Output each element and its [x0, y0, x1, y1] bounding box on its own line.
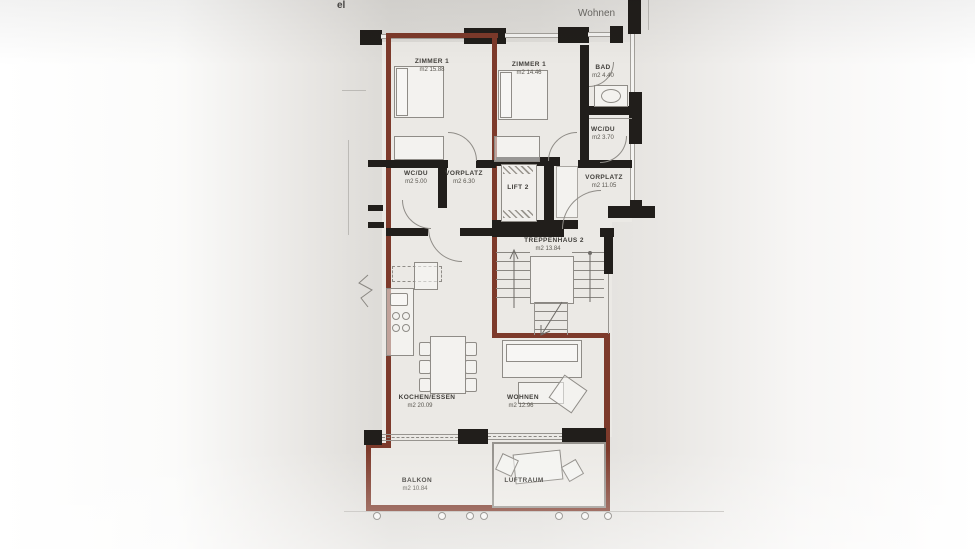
bed-pillow-icon [396, 68, 408, 116]
wall-segment [580, 45, 589, 163]
sliding-door-dash [382, 437, 458, 438]
apartment-outline-left [386, 33, 391, 445]
wall-stub [368, 160, 386, 167]
wall-segment [460, 228, 493, 236]
wall-segment [592, 428, 606, 442]
chair-icon [465, 360, 477, 374]
reference-line [342, 90, 366, 91]
room-label-wcdu-right: WC/DU [591, 126, 615, 133]
room-area-balkon: m2 10.84 [402, 486, 427, 492]
wall-segment [608, 206, 655, 218]
wall-segment [628, 0, 641, 34]
scanned-floor-plan-photo: el Wohnen [0, 0, 975, 549]
wall-segment [492, 228, 564, 237]
railing-post-icon [466, 512, 474, 520]
chair-icon [465, 342, 477, 356]
window [630, 34, 635, 92]
wall-segment [364, 430, 382, 445]
room-area-wcdu-right: m2 3.70 [592, 135, 614, 141]
lift-door-hatch [503, 210, 533, 218]
sliding-door-dash [488, 436, 562, 437]
railing-post-icon [604, 512, 612, 520]
room-area-zimmer1-right: m2 14.46 [516, 70, 541, 76]
wall-segment [562, 428, 592, 443]
chair-icon [419, 378, 431, 392]
ground-line [344, 511, 724, 512]
wall-segment [438, 162, 447, 208]
header-label-wohnen: Wohnen [578, 8, 615, 19]
page-text-fragment: el [337, 0, 345, 11]
dining-table-icon [430, 336, 466, 394]
room-area-treppenhaus-2: m2 13.84 [535, 246, 560, 252]
wall-segment [458, 429, 488, 444]
room-area-bad: m2 4.40 [592, 73, 614, 79]
bed-pillow-icon [500, 72, 512, 118]
railing-post-icon [555, 512, 563, 520]
room-label-zimmer1-right: ZIMMER 1 [512, 61, 546, 68]
room-area-vorplatz-right: m2 11.05 [592, 183, 617, 189]
room-label-treppenhaus-2: TREPPENHAUS 2 [524, 237, 584, 244]
wall-segment [386, 228, 428, 236]
apartment-outline-balcony-left [366, 443, 371, 511]
room-label-luftraum: LUFTRAUM [504, 477, 543, 484]
sliding-door-line [382, 440, 458, 441]
room-label-balkon: BALKON [402, 477, 432, 484]
railing-post-icon [373, 512, 381, 520]
stair-direction-arrows [490, 240, 612, 340]
paper-edge-line [648, 0, 649, 30]
room-label-bad: BAD [595, 64, 610, 71]
room-label-lift-2: LIFT 2 [507, 184, 529, 191]
railing-post-icon [480, 512, 488, 520]
room-label-vorplatz-right: VORPLATZ [585, 174, 623, 181]
stove-burner-icon [402, 324, 410, 332]
chair-icon [419, 360, 431, 374]
sliding-door-line [488, 439, 562, 440]
wall-segment [589, 106, 632, 115]
sliding-door-line [488, 433, 562, 434]
washbasin-bowl-icon [601, 89, 621, 103]
stove-burner-icon [402, 312, 410, 320]
wall-segment [476, 160, 496, 168]
wall-segment [360, 30, 382, 45]
railing-post-icon [581, 512, 589, 520]
lift-door-hatch [503, 166, 533, 174]
room-label-kochen-essen: KOCHEN/ESSEN [399, 394, 456, 401]
room-area-wohnen: m2 12.96 [508, 403, 533, 409]
sofa-back-icon [506, 344, 578, 362]
sliding-door-line [382, 434, 458, 435]
window [630, 144, 635, 200]
chair-icon [419, 342, 431, 356]
wall-stub [368, 205, 383, 211]
room-label-wohnen: WOHNEN [507, 394, 539, 401]
wall-stub [368, 222, 384, 228]
wall-segment [558, 27, 589, 43]
room-area-zimmer1-left: m2 15.88 [419, 67, 444, 73]
chair-icon [465, 378, 477, 392]
room-area-vorplatz-left: m2 6.30 [453, 179, 475, 185]
wall-segment [610, 26, 623, 43]
wall-segment [544, 160, 554, 222]
room-area-kochen-essen: m2 20.09 [407, 403, 432, 409]
railing-post-icon [438, 512, 446, 520]
stove-burner-icon [392, 324, 400, 332]
fixture-line [589, 118, 632, 119]
wardrobe-icon [394, 136, 444, 160]
stove-burner-icon [392, 312, 400, 320]
reference-line [348, 140, 349, 235]
apartment-outline-top [386, 33, 498, 38]
wardrobe-icon [494, 136, 540, 162]
window [588, 32, 611, 37]
break-line-icon [356, 274, 376, 308]
room-area-wcdu-left: m2 5.00 [405, 179, 427, 185]
kitchen-corner-unit-icon [414, 262, 438, 290]
room-label-zimmer1-left: ZIMMER 1 [415, 58, 449, 65]
room-label-vorplatz-left: VORPLATZ [445, 170, 483, 177]
sink-icon [390, 293, 408, 306]
room-label-wcdu-left: WC/DU [404, 170, 428, 177]
window [505, 33, 559, 38]
